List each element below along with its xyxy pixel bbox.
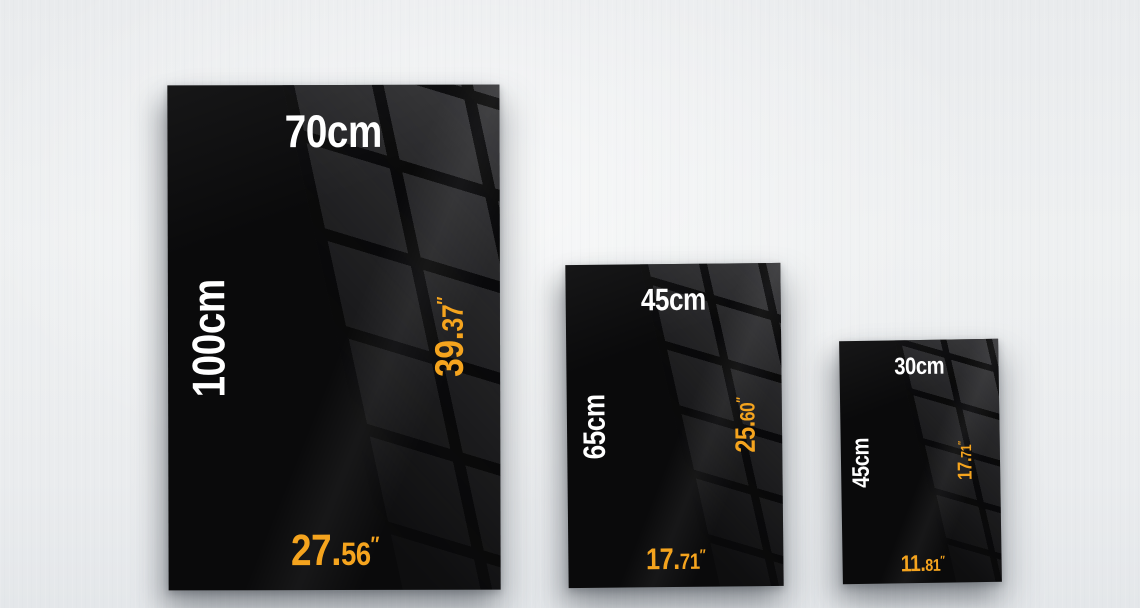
width-inch-label: 17.71″ (568, 532, 784, 588)
height-inch-text: 39.37″ (427, 297, 472, 377)
height-inch-text: 17.71″ (954, 441, 978, 480)
height-cm-text: 65cm (577, 394, 614, 459)
inch-mark: ″ (700, 547, 705, 564)
inch-mark: ″ (733, 397, 749, 402)
height-inch-text: 25.60″ (730, 397, 763, 452)
width-inch-label: 11.81″ (842, 542, 1002, 584)
inch-mark: ″ (433, 297, 455, 304)
height-cm-text: 45cm (848, 437, 877, 487)
width-inch-text: 27.56″ (291, 526, 379, 576)
inch-mark: ″ (957, 442, 968, 445)
width-inch-text: 17.71″ (646, 543, 705, 578)
poster-panel-30x45: 30cm 45cm 17.71″ 11.81″ (839, 339, 1002, 584)
poster-panel-70x100: 70cm 100cm 39.37″ 27.56″ (167, 85, 500, 591)
height-cm-text: 100cm (181, 279, 235, 397)
inch-mark: ″ (940, 554, 944, 566)
width-cm-text: 70cm (285, 104, 382, 158)
inch-mark: ″ (370, 532, 378, 557)
width-inch-text: 11.81″ (900, 549, 944, 577)
width-cm-text: 45cm (641, 282, 706, 319)
poster-panel-45x65: 45cm 65cm 25.60″ 17.71″ (565, 263, 783, 588)
size-comparison-scene: 70cm 100cm 39.37″ 27.56″ 45cm 65cm 25.60… (0, 0, 1140, 608)
width-inch-label: 27.56″ (168, 512, 500, 591)
